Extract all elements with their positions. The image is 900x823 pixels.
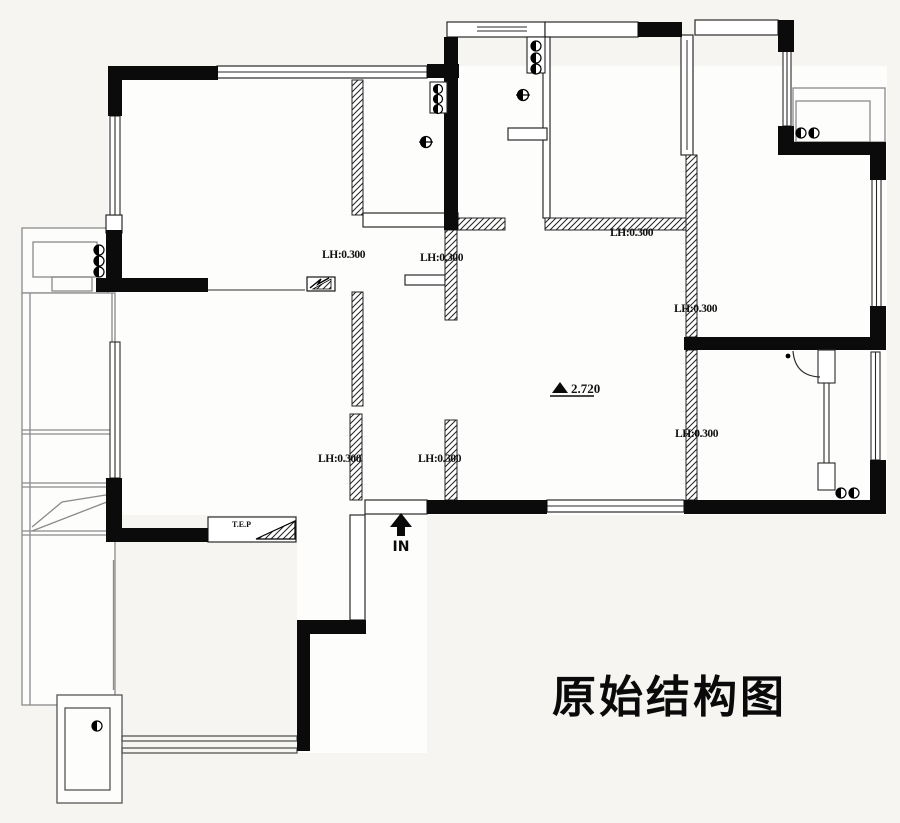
pipe-riser-icon — [430, 82, 447, 114]
beam-height-label: LH:0.300 — [610, 227, 654, 239]
beam-height-label: LH:0.300 — [674, 303, 718, 315]
elevation-value: 2.720 — [571, 381, 600, 396]
wall-segment — [870, 142, 886, 180]
wall-segment — [684, 500, 886, 514]
pipe-riser-icon — [527, 37, 545, 74]
hatched-wall — [352, 80, 363, 215]
balcony-top-right — [793, 88, 885, 142]
entry-threshold — [365, 500, 427, 514]
hatched-wall — [458, 218, 505, 230]
top-wall — [545, 22, 638, 37]
hatched-wall — [686, 350, 697, 500]
beam-height-label: LH:0.300 — [318, 453, 362, 465]
partition-wall — [350, 515, 365, 620]
wall-segment — [778, 142, 886, 155]
wall-segment — [108, 528, 208, 542]
wall-segment — [778, 20, 794, 52]
wall-segment — [444, 37, 458, 230]
balcony-left-strip — [22, 293, 115, 705]
wall-segment — [684, 337, 886, 350]
floor-plan-drawing: LH:0.300 LH:0.300 LH:0.300 LH:0.300 LH:0… — [0, 0, 900, 823]
utility-box — [57, 695, 122, 803]
floor-plan: LH:0.300 LH:0.300 LH:0.300 LH:0.300 LH:0… — [0, 0, 900, 823]
plan-title: 原始结构图 — [552, 672, 787, 723]
top-wall — [447, 22, 545, 37]
beam-height-label: LH:0.300 — [420, 252, 464, 264]
beam-height-label: LH:0.300 — [675, 428, 719, 440]
room-floors — [108, 66, 887, 753]
partition-wall — [405, 275, 445, 285]
wall-segment — [638, 22, 682, 37]
top-wall — [695, 20, 778, 35]
floor-drain-icon — [92, 721, 102, 731]
sill-label: T.E.P — [232, 520, 251, 529]
pipe-riser-icon — [94, 245, 104, 277]
partition-wall — [363, 213, 458, 227]
partition-wall — [508, 128, 547, 140]
hatched-wall — [445, 230, 457, 320]
wall-segment — [297, 620, 310, 751]
beam-height-label: LH:0.300 — [418, 453, 462, 465]
hatched-wall — [352, 292, 363, 406]
entrance-label: IN — [393, 539, 410, 555]
electric-panel-icon — [307, 277, 335, 291]
yard-wall — [122, 736, 297, 741]
yard-wall — [122, 748, 297, 753]
wall-segment — [108, 66, 218, 80]
wall-segment — [96, 278, 208, 292]
wall-segment — [427, 500, 547, 514]
wall-segment — [108, 66, 122, 116]
beam-height-label: LH:0.300 — [322, 249, 366, 261]
